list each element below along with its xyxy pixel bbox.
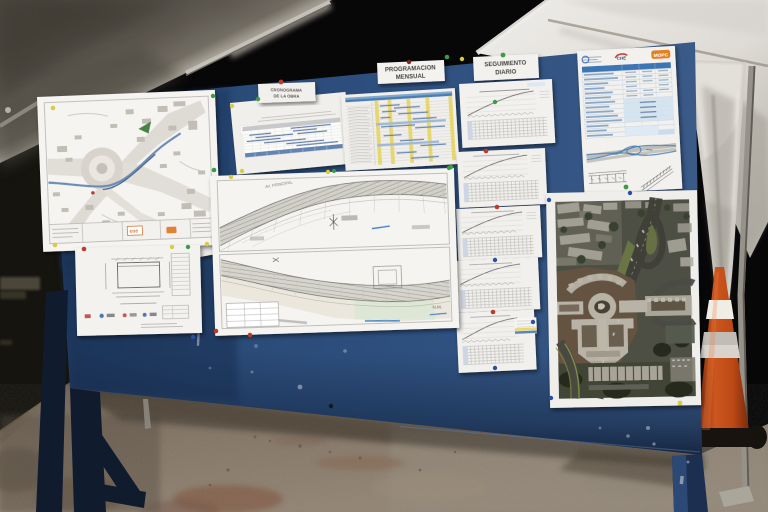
svg-text:DIARIO: DIARIO xyxy=(495,69,517,76)
svg-text:ene: ene xyxy=(129,229,138,235)
svg-text:N.M.: N.M. xyxy=(432,304,442,309)
svg-text:MOPC: MOPC xyxy=(653,52,668,59)
svg-text:CHE: CHE xyxy=(617,55,627,60)
svg-text:DE LA OBRA: DE LA OBRA xyxy=(273,93,299,98)
svg-text:CRONOGRAMA: CRONOGRAMA xyxy=(271,87,302,93)
